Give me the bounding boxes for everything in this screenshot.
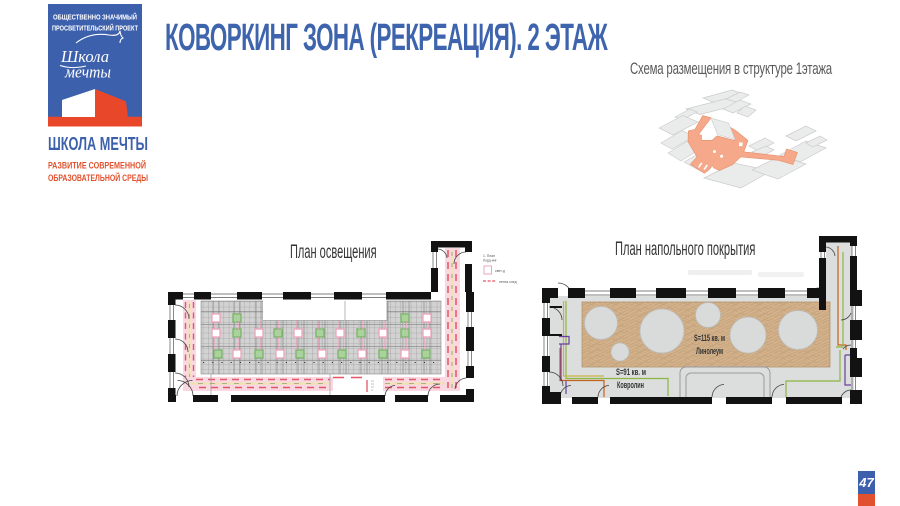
svg-text:лента след: лента след xyxy=(499,280,517,284)
svg-text:Ковролин: Ковролин xyxy=(617,380,644,390)
svg-text:ШКОЛА МЕЧТЫ: ШКОЛА МЕЧТЫ xyxy=(48,134,148,154)
svg-text:ПРОСВЕТИТЕЛЬСКИЙ ПРОЕКТ: ПРОСВЕТИТЕЛЬСКИЙ ПРОЕКТ xyxy=(52,24,138,33)
svg-text:РАЗВИТИЕ СОВРЕМЕННОЙ: РАЗВИТИЕ СОВРЕМЕННОЙ xyxy=(48,160,146,171)
svg-text:S=91 кв. м: S=91 кв. м xyxy=(616,367,646,377)
svg-text:ОБРАЗОВАТЕЛЬНОЙ СРЕДЫ: ОБРАЗОВАТЕЛЬНОЙ СРЕДЫ xyxy=(48,172,148,183)
svg-text:свет-g: свет-g xyxy=(495,269,505,273)
svg-text:мечты: мечты xyxy=(64,63,111,82)
svg-text:ОБЩЕСТВЕННО ЗНАЧИМЫЙ: ОБЩЕСТВЕННО ЗНАЧИМЫЙ xyxy=(53,13,137,22)
svg-text:борд-инг: борд-инг xyxy=(483,259,498,263)
svg-text:S=115 кв. м: S=115 кв. м xyxy=(694,333,725,343)
svg-text:1. План: 1. План xyxy=(483,254,495,258)
svg-text:Линолеум: Линолеум xyxy=(696,346,723,356)
